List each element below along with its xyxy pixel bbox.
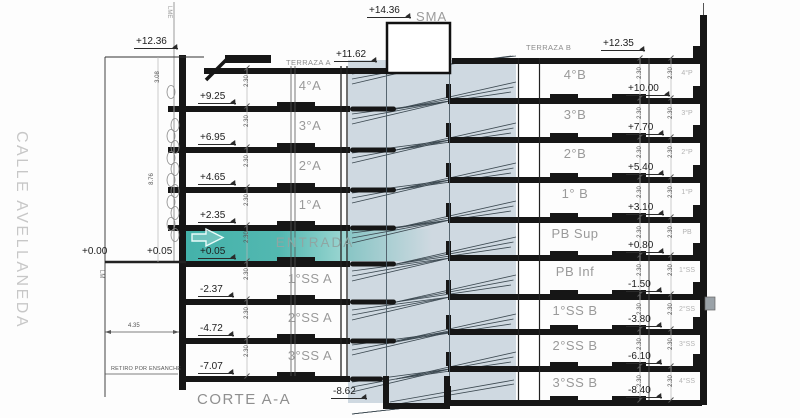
level-label-b: -3.80: [626, 314, 662, 327]
street-level: +0.00: [82, 246, 107, 257]
parapet-level: +12.36: [134, 36, 178, 49]
room-label-a: 1°SS A: [265, 271, 355, 286]
room-label-b: 2°B: [530, 146, 620, 161]
room-label-a: 2°A: [265, 158, 355, 173]
floor-height-dim-a: 2.30: [244, 109, 250, 133]
floor-height-dim-a: 2.30: [244, 225, 250, 249]
level-label-b: +10.00: [626, 83, 670, 96]
rear-unit-label: 1°SS: [670, 267, 704, 274]
room-label-entrada: ENTRADA: [270, 235, 360, 250]
level-label-b: -1.50: [626, 279, 662, 292]
floor-height-dim-b: 2.30: [637, 61, 643, 85]
level-label-a: -2.37: [198, 284, 234, 297]
rear-unit-label: 4°SS: [670, 378, 704, 385]
level-label-b: +0.80: [626, 240, 664, 253]
lm-label: LM: [98, 270, 104, 278]
floor-height-dim-b: 2.30: [637, 140, 643, 164]
room-label-a: 3°A: [265, 118, 355, 133]
room-label-a: 4°A: [265, 78, 355, 93]
floor-height-dim-b: 2.30: [637, 220, 643, 244]
room-label-b: PB Sup: [530, 226, 620, 241]
floor-height-dim-b: 2.30: [637, 101, 643, 125]
room-label-b: 1° B: [530, 186, 620, 201]
room-label-b: 3°B: [530, 107, 620, 122]
dim-top-height: 3.08: [155, 65, 161, 89]
floor-height-dim-b: 2.30: [637, 332, 643, 356]
rear-unit-label: 1°P: [670, 189, 704, 196]
level-label-b: +5.40: [626, 162, 664, 175]
street-name: CALLE AVELLANEDA: [10, 125, 30, 335]
floor-height-dim-b: 2.30: [637, 369, 643, 393]
floor-height-dim-a: 2.30: [244, 149, 250, 173]
level-label-a: +2.35: [198, 210, 236, 223]
floor-height-dim-a: 2.30: [244, 339, 250, 363]
floor-height-dim-b: 2.30: [637, 258, 643, 282]
terrace-a-level: +11.62: [334, 49, 377, 62]
pit-level: -8.62: [331, 386, 367, 399]
setback-dim: 4.35: [128, 323, 140, 329]
section-title: CORTE A-A: [197, 391, 291, 408]
floor-height-dim-a: 2.30: [244, 69, 250, 93]
level-label-a: -7.07: [198, 361, 234, 374]
room-label-b: PB Inf: [530, 264, 620, 279]
rear-unit-label: 3°P: [670, 110, 704, 117]
level-label-a: +0.05: [198, 246, 236, 259]
level-label-b: -8.40: [626, 385, 662, 398]
room-label-b: 1°SS B: [530, 303, 620, 318]
level-label-b: +3.10: [626, 202, 664, 215]
level-label-a: +9.25: [198, 91, 236, 104]
room-label-b: 2°SS B: [530, 338, 620, 353]
dim-left-height: 8.76: [149, 167, 155, 191]
room-label-b: 4°B: [530, 67, 620, 82]
rear-unit-label: 4°P: [670, 70, 704, 77]
floor-height-dim-b: 2.30: [637, 180, 643, 204]
level-label-b: +7.70: [626, 122, 664, 135]
machine-room-level: +14.36: [367, 5, 411, 18]
rear-unit-label: 2°P: [670, 149, 704, 156]
rear-unit-label: 2°SS: [670, 306, 704, 313]
machine-room-label: SMA: [416, 9, 447, 24]
lme-label: LME: [166, 6, 172, 18]
sidewalk-level: +0.05: [147, 246, 172, 257]
level-label-a: -4.72: [198, 323, 234, 336]
terrace-a-label: TERRAZA A: [286, 58, 331, 67]
level-label-a: +4.65: [198, 172, 236, 185]
level-label-a: +6.95: [198, 132, 236, 145]
floor-height-dim-a: 2.30: [244, 262, 250, 286]
room-label-a: 1°A: [265, 197, 355, 212]
room-label-a: 2°SS A: [265, 310, 355, 325]
level-label-b: -6.10: [626, 351, 662, 364]
rear-unit-label: 3°SS: [670, 341, 704, 348]
section-linework: [0, 0, 800, 418]
floor-height-dim-a: 2.30: [244, 188, 250, 212]
section-drawing-canvas: CALLE AVELLANEDA LME LM RETIRO POR ENSAN…: [0, 0, 800, 418]
floor-height-dim-a: 2.30: [244, 301, 250, 325]
rear-unit-label: PB: [670, 229, 704, 236]
room-label-a: 3°SS A: [265, 348, 355, 363]
terrace-b-label: TERRAZA B: [526, 43, 571, 52]
terrace-b-level: +12.35: [601, 38, 645, 51]
setback-note: RETIRO POR ENSANCHE: [111, 366, 181, 372]
room-label-b: 3°SS B: [530, 375, 620, 390]
floor-height-dim-b: 2.30: [637, 297, 643, 321]
